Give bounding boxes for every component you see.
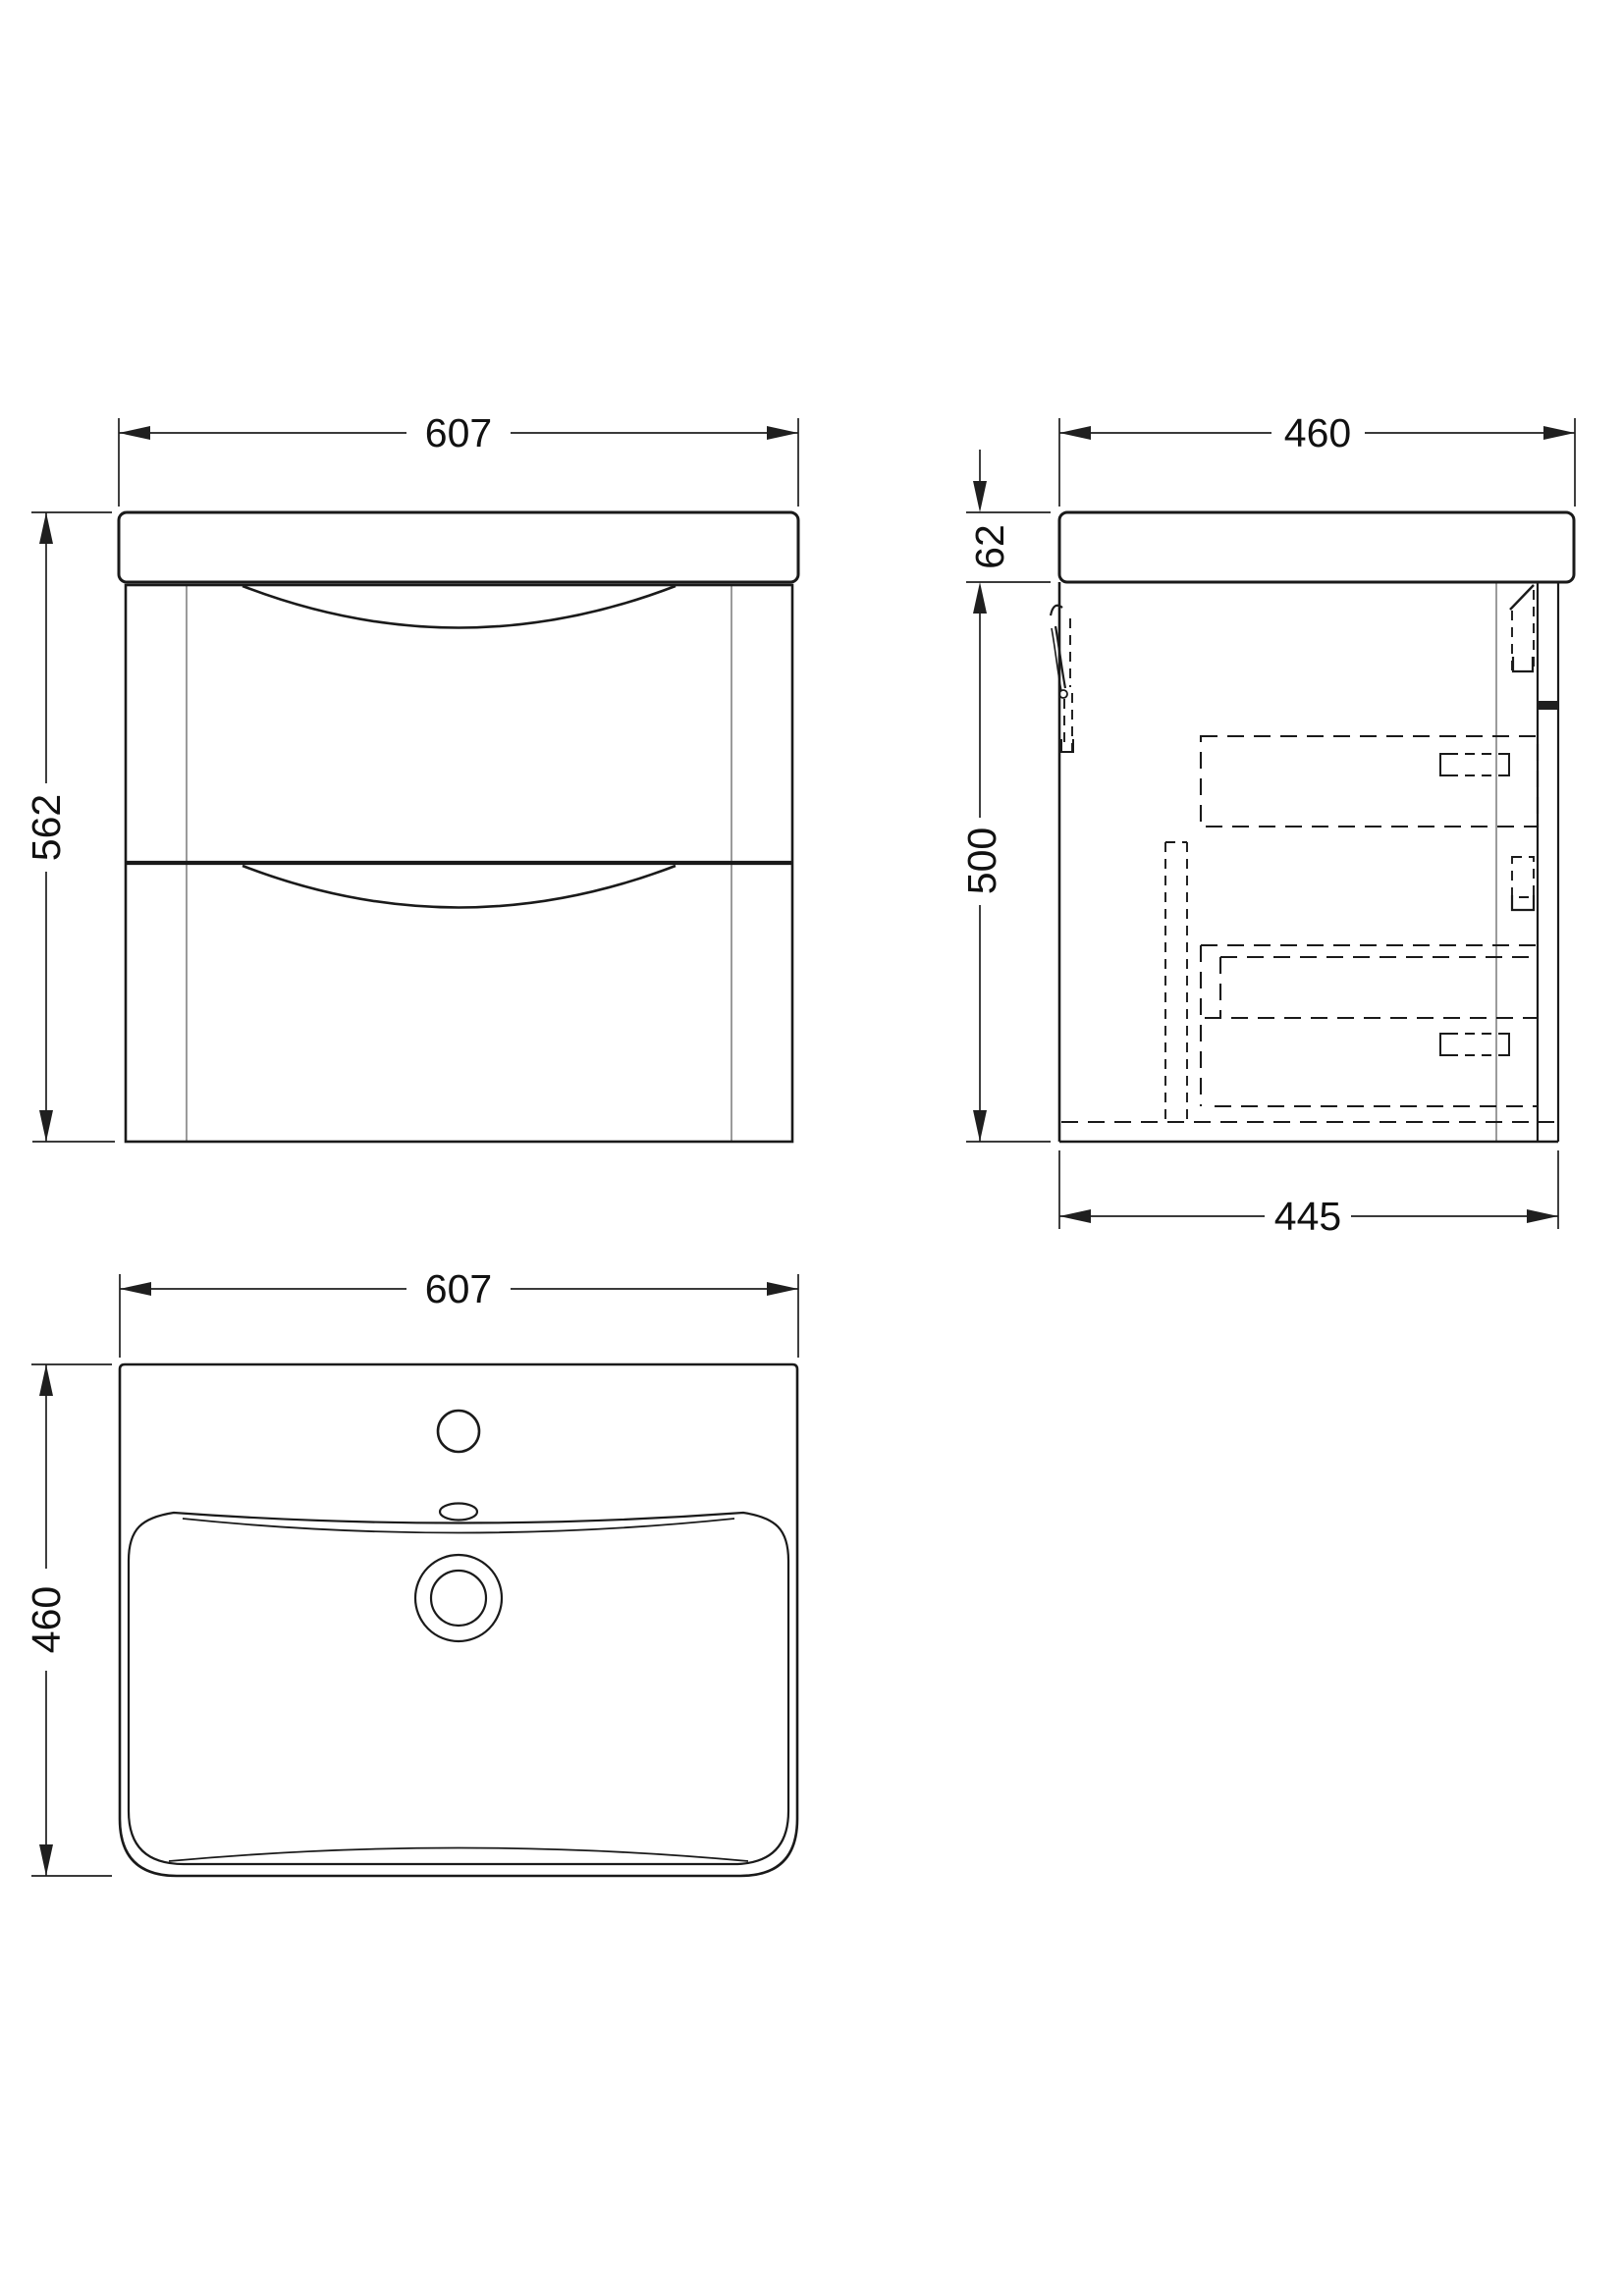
vanity-technical-drawing: 607 562 bbox=[0, 0, 1623, 2296]
front-upper-drawer-handle-curve bbox=[243, 586, 676, 628]
side-lower-drawer-hidden bbox=[1201, 945, 1538, 1106]
plan-tap-hole bbox=[438, 1411, 479, 1452]
plan-drain-inner bbox=[431, 1571, 486, 1626]
side-wall-rail-mark bbox=[1538, 701, 1558, 710]
side-cabinet-height-label: 500 bbox=[959, 828, 1004, 894]
side-cabinet-depth-label: 445 bbox=[1274, 1194, 1341, 1239]
front-width-label: 607 bbox=[425, 410, 492, 455]
side-elevation-view: 460 62 500 445 bbox=[959, 410, 1575, 1239]
plan-depth-dimension: 460 bbox=[24, 1364, 112, 1876]
front-lower-drawer-handle-curve bbox=[243, 866, 676, 908]
side-basin-slab bbox=[1059, 512, 1574, 582]
plan-drain-outer bbox=[415, 1555, 502, 1641]
side-waste-pipe-hidden bbox=[1165, 842, 1187, 1121]
side-lower-wall-bracket bbox=[1512, 857, 1534, 910]
plan-width-dimension: 607 bbox=[120, 1266, 798, 1358]
plan-view: 607 460 bbox=[24, 1266, 798, 1876]
front-elevation-view: 607 562 bbox=[24, 410, 798, 1142]
front-basin-slab bbox=[119, 512, 798, 582]
plan-width-label: 607 bbox=[425, 1266, 492, 1311]
plan-bowl-floor-line bbox=[169, 1848, 748, 1862]
plan-basin-outline bbox=[120, 1364, 797, 1876]
plan-depth-label: 460 bbox=[24, 1586, 69, 1653]
side-basin-thickness-label: 62 bbox=[967, 524, 1012, 569]
side-depth-dimension: 460 bbox=[1059, 410, 1575, 507]
side-basin-thickness-dimension: 62 bbox=[966, 450, 1051, 582]
plan-bowl-outline bbox=[129, 1513, 788, 1864]
side-upper-wall-bracket bbox=[1510, 585, 1534, 671]
side-cabinet-depth-dimension: 445 bbox=[1059, 1150, 1558, 1239]
front-height-label: 562 bbox=[24, 794, 69, 861]
side-hinge-detail bbox=[1051, 606, 1073, 752]
front-height-dimension: 562 bbox=[24, 512, 115, 1142]
side-cabinet-height-dimension: 500 bbox=[959, 582, 1051, 1142]
front-width-dimension: 607 bbox=[119, 410, 798, 507]
plan-overflow-slot bbox=[440, 1504, 477, 1521]
side-upper-drawer-hidden bbox=[1201, 736, 1538, 827]
side-depth-label: 460 bbox=[1284, 410, 1351, 455]
drawing-sheet: 607 562 bbox=[0, 0, 1623, 2296]
